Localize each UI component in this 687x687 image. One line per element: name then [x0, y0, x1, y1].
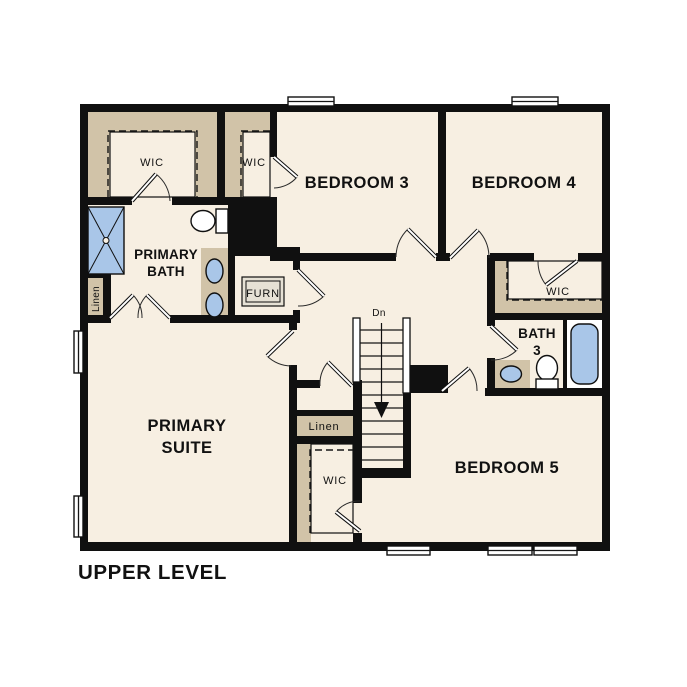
wic5-shelf-left: [297, 444, 311, 542]
label-primary-wic: WIC: [140, 157, 164, 169]
wall-wic1-wic2: [217, 104, 225, 205]
wall-stairs-bottom: [353, 468, 411, 478]
wall-strip-east-stub: [353, 533, 362, 543]
primary-bath-toilet: [191, 209, 228, 233]
window-bedroom4: [512, 97, 558, 106]
bath3-toilet: [536, 356, 558, 390]
window-bedroom3: [288, 97, 334, 106]
window-primary-suite-upper: [74, 331, 83, 373]
label-primary-suite-line1: PRIMARY: [148, 417, 227, 435]
wall-tub-partition: [563, 320, 567, 388]
wall-bath3-west-lower: [487, 358, 495, 396]
wall-exterior-left: [80, 104, 88, 551]
label-bedroom3: BEDROOM 3: [305, 174, 409, 192]
wall-bed3-bed4: [438, 104, 446, 261]
floor-plan-canvas: Dn: [0, 0, 687, 687]
label-linen-bath: Linen: [91, 286, 102, 312]
wic4-shelf-bottom: [495, 299, 602, 313]
wall-strip-east: [353, 380, 362, 503]
bathtub: [567, 320, 602, 388]
wall-wic-bottom-a: [80, 197, 132, 205]
stair-rail-left: [353, 318, 360, 382]
wall-suite-east-stub: [289, 315, 297, 330]
wall-wic-bottom-b: [172, 197, 277, 205]
label-primary-suite-line2: SUITE: [161, 439, 212, 457]
wall-wic4-bath3: [487, 313, 610, 320]
label-bath3-line1: BATH: [518, 326, 556, 341]
wall-furn-top: [270, 247, 300, 255]
primary-wic-shelf-left: [88, 112, 110, 197]
label-furnace: FURN: [246, 288, 280, 300]
label-bedroom5: BEDROOM 5: [455, 459, 559, 477]
wall-furn-right-a: [293, 255, 300, 270]
chase-primary-bath: [228, 205, 277, 256]
window-bedroom5-a: [387, 546, 430, 555]
wall-suite-north-b: [170, 315, 296, 323]
label-wic4: WIC: [546, 286, 570, 298]
plan-title: UPPER LEVEL: [78, 561, 227, 584]
floor-plan-page: Dn: [0, 0, 687, 687]
label-primary-bath-line1: PRIMARY: [134, 247, 198, 262]
window-primary-suite-lower: [74, 496, 83, 537]
wall-linen-bottom: [295, 436, 353, 444]
wall-suite-east: [289, 365, 297, 550]
label-wic5: WIC: [323, 475, 347, 487]
label-primary-bath-line2: BATH: [147, 264, 185, 279]
wall-hall-north-b: [436, 253, 450, 261]
wall-nook-south: [289, 380, 320, 388]
stair-down-label: Dn: [372, 308, 385, 319]
label-linen-hall: Linen: [309, 421, 340, 433]
primary-wic-shelf-right: [195, 112, 217, 197]
wall-wic2-bed3-upper: [270, 104, 277, 157]
wall-hall-north-d: [578, 253, 602, 261]
label-bath3-line2: 3: [533, 343, 541, 358]
label-wic2: WIC: [242, 157, 266, 169]
window-bedroom5-b: [488, 546, 532, 555]
wall-linen-top: [295, 410, 353, 416]
wall-exterior-right: [602, 104, 610, 551]
wall-stairs-right: [403, 390, 411, 478]
window-bedroom5-c: [534, 546, 577, 555]
wall-hall-north-c: [490, 253, 534, 261]
stair-rail-right: [403, 318, 410, 393]
label-bedroom4: BEDROOM 4: [472, 174, 577, 192]
shower: [88, 207, 124, 274]
wall-vanity-furn: [228, 248, 235, 323]
bath3-sink: [501, 366, 522, 382]
